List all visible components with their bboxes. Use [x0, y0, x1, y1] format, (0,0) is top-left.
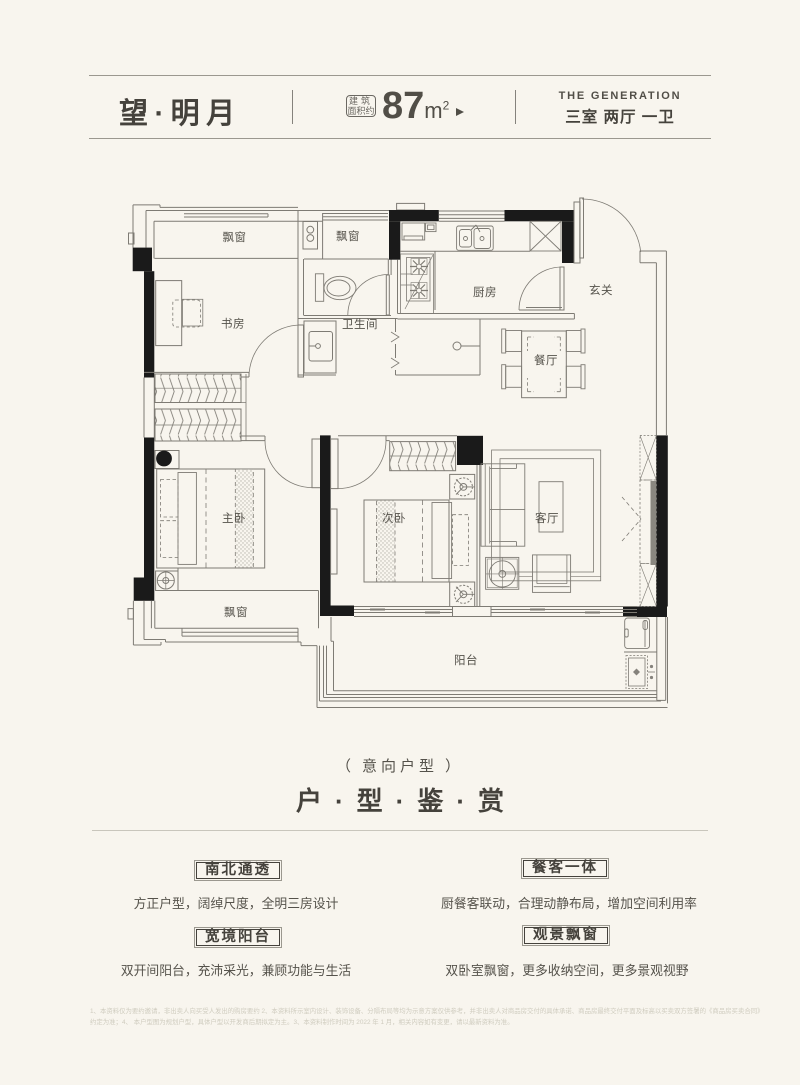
svg-text:书房: 书房 — [221, 318, 245, 331]
svg-text:厨房: 厨房 — [473, 286, 497, 299]
svg-text:玄关: 玄关 — [589, 283, 613, 297]
svg-text:主卧: 主卧 — [222, 512, 246, 525]
svg-text:卫生间: 卫生间 — [342, 317, 378, 331]
svg-text:飘窗: 飘窗 — [223, 230, 247, 244]
svg-text:餐厅: 餐厅 — [534, 353, 558, 367]
svg-text:阳台: 阳台 — [454, 653, 478, 667]
svg-text:飘窗: 飘窗 — [336, 229, 360, 243]
svg-text:飘窗: 飘窗 — [224, 605, 248, 619]
svg-text:次卧: 次卧 — [382, 511, 406, 525]
svg-text:客厅: 客厅 — [535, 511, 559, 525]
